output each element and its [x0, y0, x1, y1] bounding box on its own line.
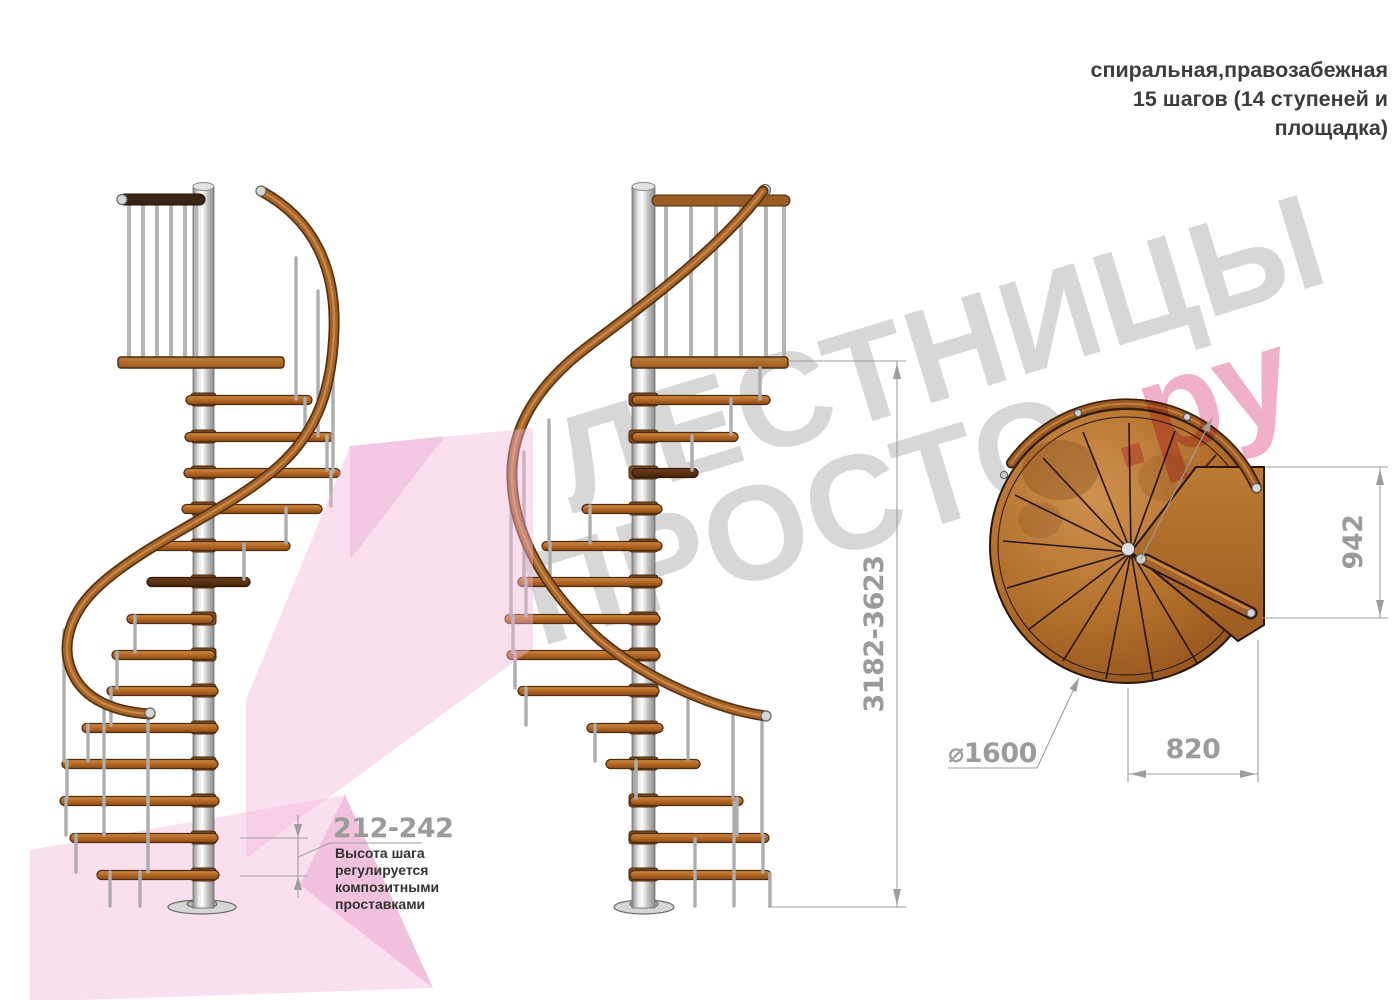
diameter-label: ⌀1600 [948, 738, 1037, 769]
overall-height-label: 3182-3623 [859, 556, 890, 713]
step-rise-note: Высота шага регулируется композитными пр… [335, 845, 439, 912]
landing-handrail [652, 195, 790, 206]
rail-bottom-cap [145, 708, 155, 718]
rail-post-dot [1001, 472, 1008, 479]
landing-platform [631, 357, 788, 368]
rail-bottom-cap [761, 711, 771, 721]
title-line-1: спиральная,правозабежная [1091, 58, 1389, 82]
step-rise-label: 212-242 [333, 813, 453, 844]
pole-hub [1122, 543, 1135, 556]
landing-platform [118, 357, 284, 368]
staircase-drawing: ЛЕСТНИЦЫ ПРОСТО [0, 0, 1400, 1000]
note-line-2: регулируется [335, 862, 428, 878]
handrail-end-cap [1252, 484, 1261, 493]
note-line-4: проставками [335, 896, 425, 912]
note-line-1: Высота шага [335, 845, 425, 861]
rail-post-dot [1075, 410, 1082, 417]
wood-grain [1022, 440, 1098, 500]
drawing-page: ЛЕСТНИЦЫ ПРОСТО [0, 0, 1400, 1000]
note-line-3: композитными [335, 879, 439, 895]
pole-cap [193, 183, 214, 191]
handrail-end-cap [117, 195, 127, 205]
landing-handrail-dark [119, 194, 205, 205]
landing-length-label: 942 [1338, 515, 1369, 570]
title-line-2: 15 шагов (14 ступеней и [1133, 87, 1388, 111]
title-line-3: площадка) [1275, 116, 1388, 140]
landing-width-label: 820 [1166, 734, 1221, 765]
handrail-end-cap [1247, 609, 1255, 617]
rail-top-cap [256, 186, 266, 196]
pole-cap [632, 183, 655, 191]
